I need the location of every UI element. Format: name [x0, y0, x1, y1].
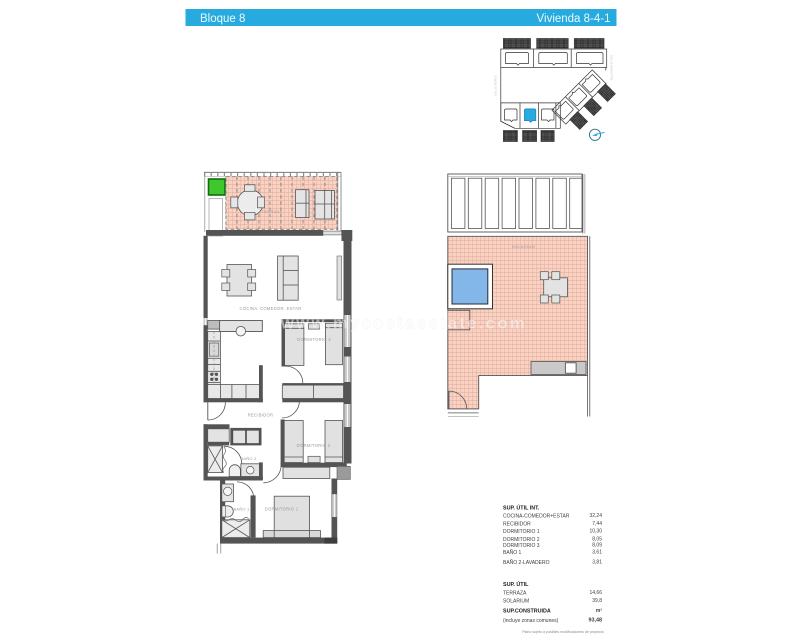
svg-text:8,09: 8,09	[592, 542, 602, 548]
svg-text:SOLARIUM: SOLARIUM	[503, 599, 529, 605]
svg-text:BAÑO 2-LAVADERO: BAÑO 2-LAVADERO	[503, 559, 550, 566]
svg-text:CALLE NORTE: CALLE NORTE	[494, 75, 498, 96]
svg-text:32,24: 32,24	[589, 513, 602, 519]
svg-text:DORMITORIO 3: DORMITORIO 3	[297, 337, 331, 342]
svg-text:COCINA. COMEDOR. ESTAR: COCINA. COMEDOR. ESTAR	[240, 306, 302, 311]
svg-text:Plano sujeto a posibles modifi: Plano sujeto a posibles modificaciones d…	[522, 630, 604, 634]
svg-text:SOLARIUM: SOLARIUM	[512, 244, 535, 249]
svg-text:3,61: 3,61	[592, 550, 602, 556]
svg-text:14,66: 14,66	[589, 590, 602, 596]
svg-text:10,30: 10,30	[589, 529, 602, 535]
svg-text:m²: m²	[596, 608, 602, 614]
svg-text:7,44: 7,44	[592, 521, 602, 527]
svg-text:SUP. ÚTIL INT.: SUP. ÚTIL INT.	[503, 505, 540, 512]
svg-text:SUP. ÚTIL: SUP. ÚTIL	[503, 581, 529, 588]
svg-text:SUP.CONSTRUIDA: SUP.CONSTRUIDA	[503, 608, 551, 614]
svg-text:COCINA-COMEDOR+ESTAR: COCINA-COMEDOR+ESTAR	[503, 514, 570, 520]
svg-text:3,81: 3,81	[592, 559, 602, 565]
svg-text:TERRAZA: TERRAZA	[503, 591, 527, 597]
svg-text:BAÑO 1: BAÑO 1	[234, 507, 250, 512]
svg-text:Vivienda 8-4-1: Vivienda 8-4-1	[537, 13, 611, 25]
svg-text:TERRAZA: TERRAZA	[262, 209, 283, 214]
svg-text:DORMITORIO 1: DORMITORIO 1	[265, 507, 299, 512]
svg-text:BAÑO 1: BAÑO 1	[503, 549, 522, 556]
svg-text:93,48: 93,48	[589, 617, 603, 623]
svg-text:RECIBIDOR: RECIBIDOR	[248, 412, 274, 417]
svg-text:CALLE MAESTRO: CALLE MAESTRO	[610, 55, 614, 81]
svg-text:www.mycostaestate.com: www.mycostaestate.com	[280, 315, 525, 333]
svg-text:39,8: 39,8	[592, 598, 602, 604]
svg-text:DORMITORIO 3: DORMITORIO 3	[503, 543, 540, 549]
svg-text:BAÑO 2: BAÑO 2	[241, 456, 257, 461]
svg-text:RECIBIDOR: RECIBIDOR	[503, 522, 531, 528]
svg-text:DORMITORIO 2: DORMITORIO 2	[297, 443, 331, 448]
svg-text:(incluye zonas comunes): (incluye zonas comunes)	[503, 618, 559, 624]
svg-text:Bloque 8: Bloque 8	[200, 13, 245, 25]
svg-text:DORMITORIO 1: DORMITORIO 1	[503, 529, 540, 535]
